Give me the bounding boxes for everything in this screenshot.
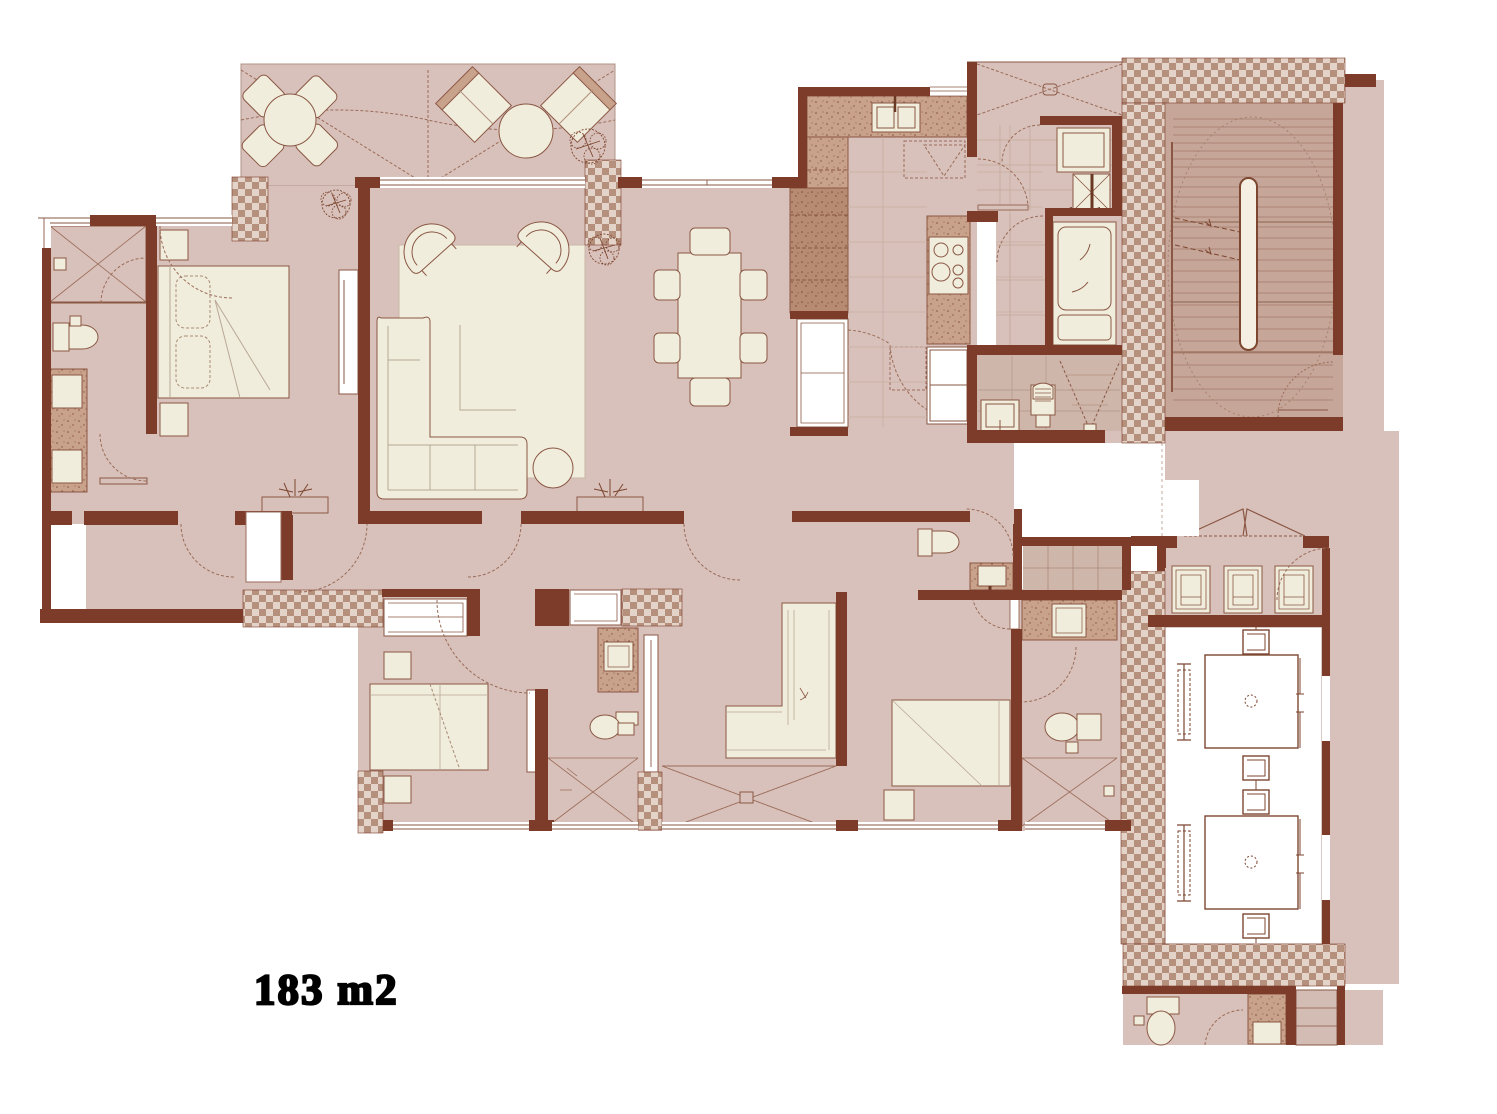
svg-text:183 m2: 183 m2	[254, 967, 399, 1014]
